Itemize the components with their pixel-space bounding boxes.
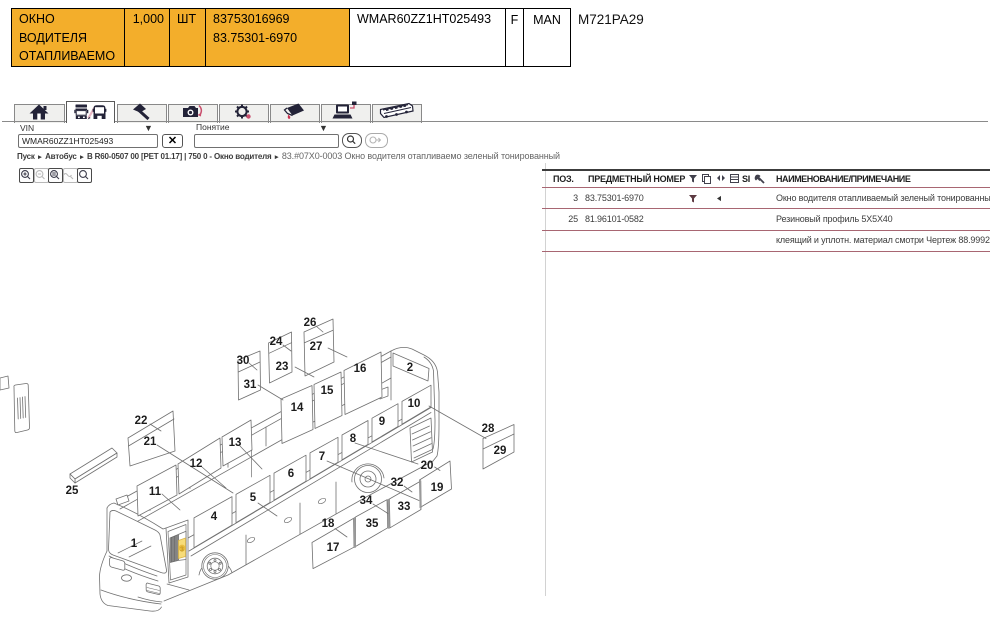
svg-text:2: 2 <box>407 362 413 374</box>
svg-text:7: 7 <box>319 451 325 463</box>
svg-text:27: 27 <box>310 341 323 353</box>
svg-text:29: 29 <box>494 445 507 457</box>
svg-text:16: 16 <box>354 363 367 375</box>
svg-text:25: 25 <box>66 485 79 497</box>
svg-text:11: 11 <box>149 486 162 498</box>
svg-text:8: 8 <box>350 433 357 445</box>
svg-text:13: 13 <box>229 437 242 449</box>
svg-text:10: 10 <box>408 398 421 410</box>
svg-text:6: 6 <box>288 468 294 480</box>
svg-text:23: 23 <box>276 361 289 373</box>
svg-text:9: 9 <box>379 416 385 428</box>
svg-text:19: 19 <box>431 482 444 494</box>
svg-text:22: 22 <box>135 415 148 427</box>
svg-text:14: 14 <box>291 402 304 414</box>
svg-text:30: 30 <box>237 355 250 367</box>
svg-text:33: 33 <box>398 501 411 513</box>
svg-text:35: 35 <box>366 518 379 530</box>
svg-text:18: 18 <box>322 518 335 530</box>
svg-text:32: 32 <box>391 477 404 489</box>
svg-text:1: 1 <box>131 538 138 550</box>
svg-text:21: 21 <box>144 436 157 448</box>
svg-text:31: 31 <box>244 379 257 391</box>
svg-text:12: 12 <box>190 458 203 470</box>
svg-text:3: 3 <box>180 547 184 554</box>
svg-text:4: 4 <box>211 511 218 523</box>
svg-text:28: 28 <box>482 423 495 435</box>
svg-text:34: 34 <box>360 495 373 507</box>
svg-text:26: 26 <box>304 317 317 329</box>
svg-text:20: 20 <box>421 460 434 472</box>
svg-text:24: 24 <box>270 336 283 348</box>
svg-text:15: 15 <box>321 385 334 397</box>
svg-text:5: 5 <box>250 492 257 504</box>
svg-text:17: 17 <box>327 542 340 554</box>
